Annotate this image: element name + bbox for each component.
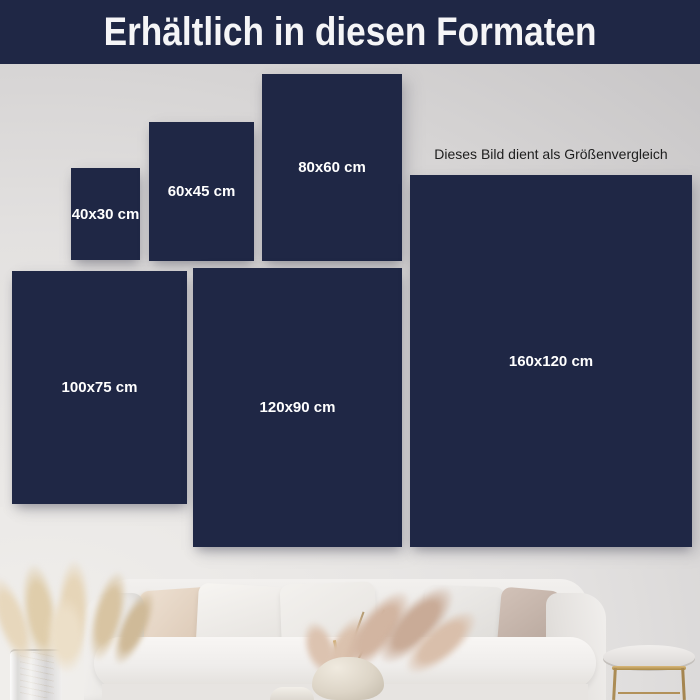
size-label: 60x45 cm bbox=[168, 183, 236, 200]
canvas-size-160x120: 160x120 cm bbox=[410, 175, 692, 547]
canvas-size-60x45: 60x45 cm bbox=[149, 122, 254, 261]
size-label: 40x30 cm bbox=[72, 206, 140, 223]
size-label: 160x120 cm bbox=[509, 353, 593, 370]
size-comparison-note: Dieses Bild dient als Größenvergleich bbox=[410, 146, 692, 162]
canvas-size-80x60: 80x60 cm bbox=[262, 74, 402, 261]
canvas-size-120x90: 120x90 cm bbox=[193, 268, 402, 547]
side-table-crossbar bbox=[618, 692, 680, 694]
small-white-vase bbox=[270, 687, 314, 700]
side-table-brass-rim bbox=[612, 666, 686, 670]
header-banner: Erhältlich in diesen Formaten bbox=[0, 0, 700, 64]
size-comparison-page: Erhältlich in diesen Formaten 40x30 cm 6… bbox=[0, 0, 700, 700]
canvas-size-100x75: 100x75 cm bbox=[12, 271, 187, 504]
page-title: Erhältlich in diesen Formaten bbox=[104, 10, 597, 55]
size-label: 100x75 cm bbox=[62, 379, 138, 396]
canvas-size-40x30: 40x30 cm bbox=[71, 168, 140, 260]
size-label: 80x60 cm bbox=[298, 159, 366, 176]
size-label: 120x90 cm bbox=[260, 399, 336, 416]
